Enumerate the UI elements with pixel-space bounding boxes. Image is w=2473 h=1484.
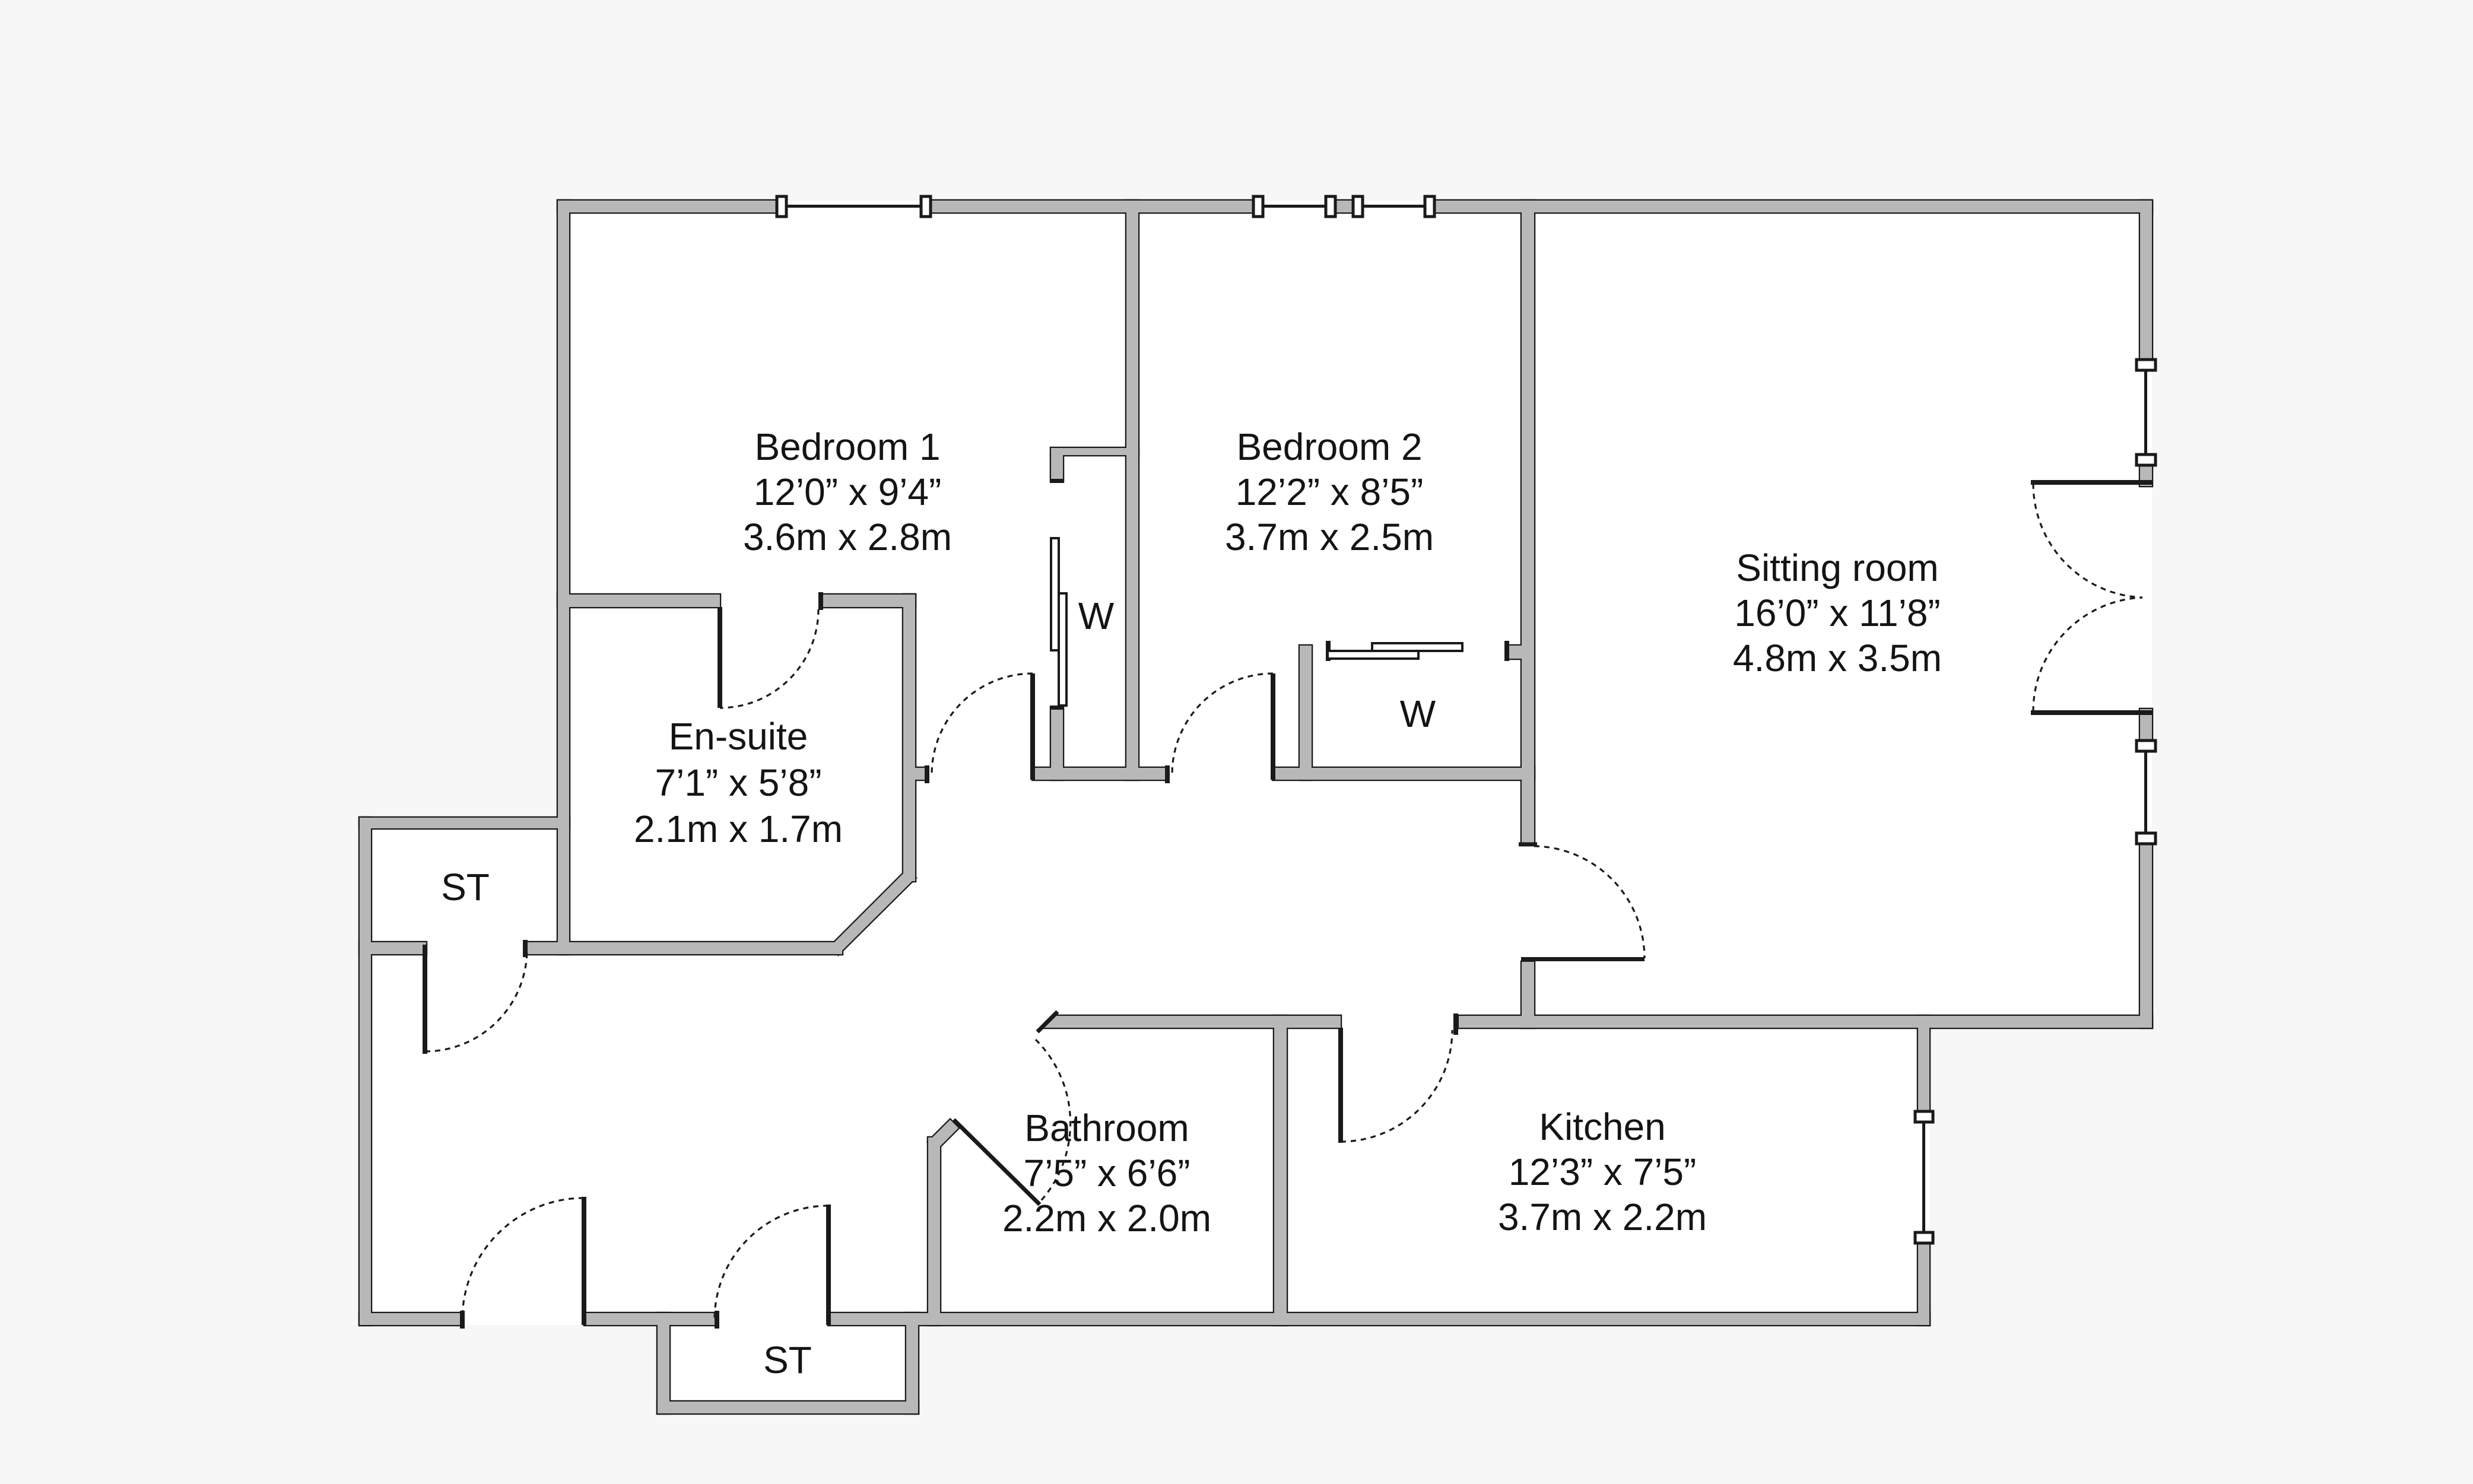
- svg-text:ST: ST: [763, 1339, 812, 1381]
- svg-text:Sitting room: Sitting room: [1736, 546, 1938, 589]
- svg-text:4.8m x 3.5m: 4.8m x 3.5m: [1733, 637, 1942, 679]
- svg-text:W: W: [1078, 595, 1115, 637]
- svg-text:3.6m x 2.8m: 3.6m x 2.8m: [743, 516, 952, 558]
- svg-text:16’0” x 11’8”: 16’0” x 11’8”: [1734, 592, 1940, 634]
- svg-text:12’3” x 7’5”: 12’3” x 7’5”: [1509, 1151, 1697, 1193]
- svg-text:Bedroom 2: Bedroom 2: [1236, 425, 1422, 468]
- svg-text:Bedroom 1: Bedroom 1: [754, 425, 940, 468]
- svg-text:Bathroom: Bathroom: [1024, 1107, 1189, 1149]
- svg-text:Kitchen: Kitchen: [1539, 1105, 1665, 1148]
- svg-text:2.2m x 2.0m: 2.2m x 2.0m: [1002, 1197, 1211, 1240]
- svg-text:3.7m x 2.5m: 3.7m x 2.5m: [1225, 516, 1434, 558]
- svg-text:3.7m x 2.2m: 3.7m x 2.2m: [1498, 1196, 1707, 1238]
- svg-text:W: W: [1400, 692, 1436, 735]
- svg-text:7’5” x 6’6”: 7’5” x 6’6”: [1024, 1152, 1191, 1194]
- svg-text:2.1m x 1.7m: 2.1m x 1.7m: [634, 808, 843, 850]
- svg-text:ST: ST: [441, 866, 490, 908]
- svg-text:12’2” x 8’5”: 12’2” x 8’5”: [1236, 471, 1424, 513]
- svg-text:En-suite: En-suite: [669, 715, 808, 758]
- svg-text:7’1” x 5’8”: 7’1” x 5’8”: [655, 761, 822, 804]
- svg-text:12’0” x 9’4”: 12’0” x 9’4”: [754, 471, 942, 513]
